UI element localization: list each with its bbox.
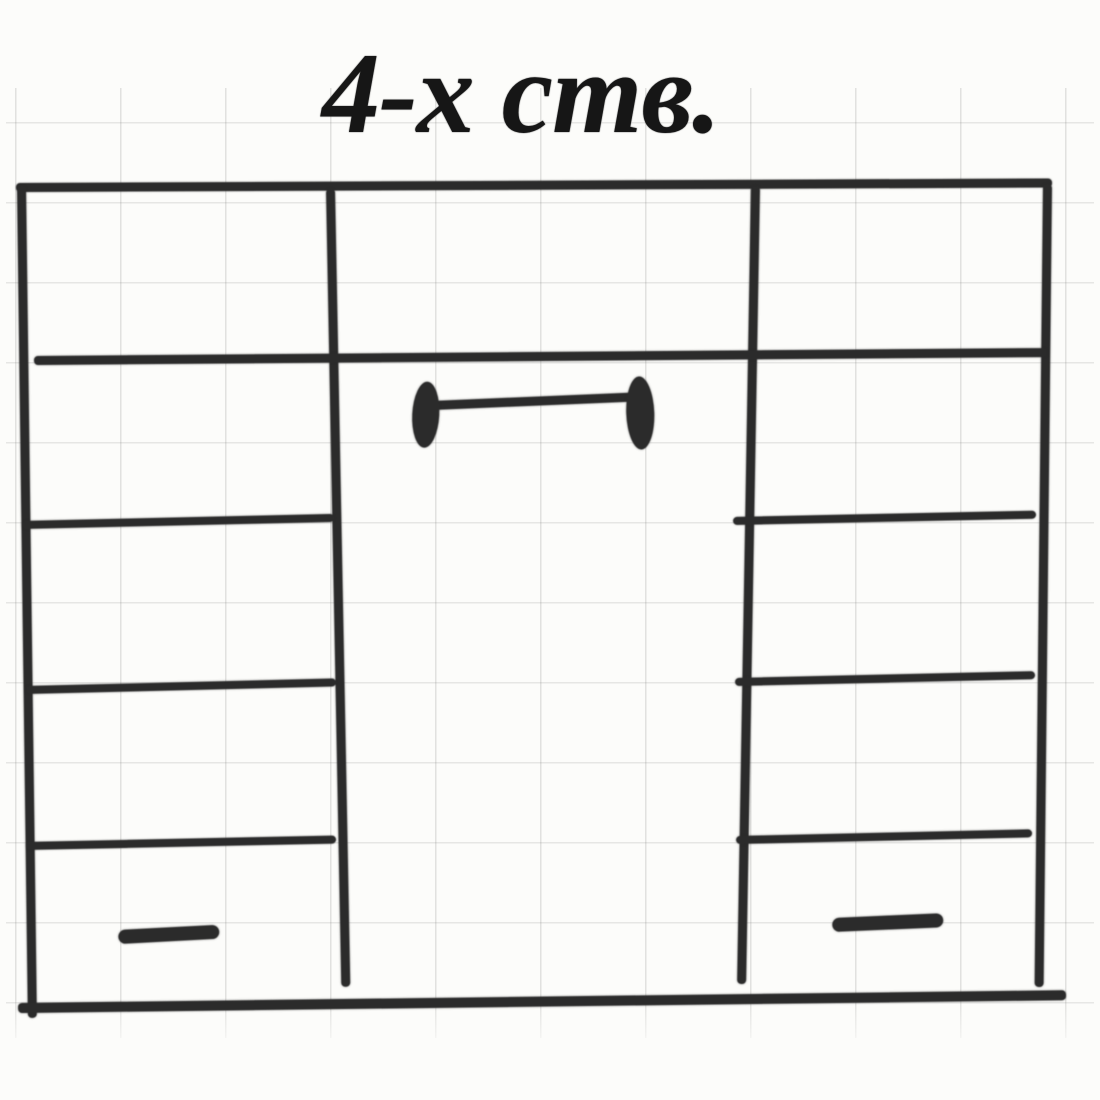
right-section-divider bbox=[737, 186, 760, 984]
right-drawer-handle bbox=[832, 913, 944, 932]
center-door-handle-bar bbox=[431, 392, 639, 410]
diagram-title: 4-х ств. bbox=[322, 36, 720, 152]
left-column-shelf-lower bbox=[26, 836, 336, 850]
cabinet-bottom-border bbox=[18, 990, 1066, 1013]
cabinet-left-border bbox=[17, 186, 37, 1018]
left-section-divider bbox=[326, 189, 350, 987]
cabinet-right-border bbox=[1035, 184, 1052, 987]
left-column-shelf-middle bbox=[26, 678, 336, 694]
right-column-shelf-lower bbox=[736, 829, 1032, 844]
right-column-shelf-middle bbox=[735, 671, 1035, 686]
cabinet-top-border bbox=[16, 178, 1052, 192]
left-column-shelf-upper bbox=[22, 514, 334, 529]
top-shelf-full-width bbox=[34, 348, 1047, 365]
sketch-page: 4-х ств. bbox=[0, 0, 1100, 1100]
right-column-shelf-upper bbox=[733, 511, 1036, 525]
center-door-handle-cap-left bbox=[411, 381, 441, 448]
center-door-handle-cap-right bbox=[625, 376, 656, 450]
wardrobe-front-view-drawing bbox=[0, 0, 1100, 1100]
left-drawer-handle bbox=[118, 925, 220, 944]
